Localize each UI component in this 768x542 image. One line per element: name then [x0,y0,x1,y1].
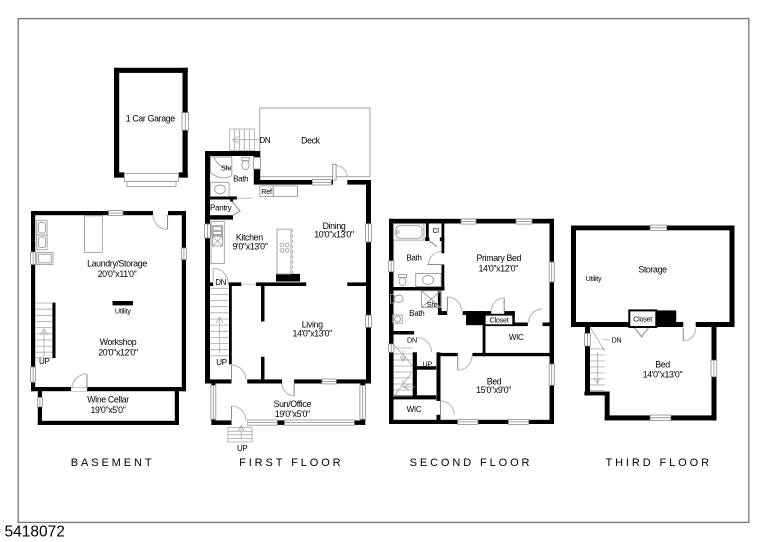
svg-text:Utility: Utility [586,274,602,283]
svg-text:Bath: Bath [233,174,248,183]
svg-text:Shr: Shr [221,164,232,173]
svg-text:BASEMENT: BASEMENT [71,457,155,469]
svg-text:10'0"x13'0": 10'0"x13'0" [314,230,354,240]
svg-text:WIC: WIC [509,333,524,342]
svg-text:15'0"x9'0": 15'0"x9'0" [476,385,511,395]
svg-text:Workshop: Workshop [100,337,137,347]
svg-text:Pantry: Pantry [210,204,232,213]
svg-text:20'0"x11'0": 20'0"x11'0" [98,269,137,279]
svg-text:9'0"x13'0": 9'0"x13'0" [233,241,268,251]
svg-text:Ref: Ref [261,187,272,196]
svg-text:Primary Bed: Primary Bed [477,253,522,263]
svg-text:DN: DN [407,336,417,345]
svg-text:Wine Cellar: Wine Cellar [87,395,129,405]
svg-text:Shr: Shr [427,300,438,309]
svg-text:14'0"x13'0": 14'0"x13'0" [292,328,332,338]
svg-text:Bed: Bed [655,360,670,370]
svg-text:Cl: Cl [432,226,439,235]
svg-text:Bath: Bath [406,253,421,262]
svg-text:Laundry/Storage: Laundry/Storage [87,259,147,269]
svg-text:19'0"x5'0": 19'0"x5'0" [91,405,126,415]
svg-text:Closet: Closet [490,316,509,325]
svg-text:WIC: WIC [407,405,422,414]
svg-text:SECOND FLOOR: SECOND FLOOR [410,457,533,469]
svg-text:Closet: Closet [633,315,652,324]
svg-text:Utility: Utility [115,307,131,316]
svg-text:14'0"x13'0": 14'0"x13'0" [643,370,683,380]
svg-text:5418072: 5418072 [5,524,65,541]
svg-text:1 Car Garage: 1 Car Garage [126,114,176,124]
svg-text:THIRD FLOOR: THIRD FLOOR [605,457,711,469]
svg-text:14'0"x12'0": 14'0"x12'0" [478,264,518,274]
svg-text:20'0"x12'0": 20'0"x12'0" [98,348,138,358]
svg-text:UP: UP [423,360,433,369]
svg-text:Bath: Bath [409,309,424,318]
svg-text:DN: DN [259,136,270,145]
svg-text:FIRST FLOOR: FIRST FLOOR [239,457,343,469]
svg-text:DN: DN [611,335,621,344]
svg-text:Sun/Office: Sun/Office [274,399,312,409]
svg-text:UP: UP [216,358,227,367]
svg-text:Deck: Deck [301,135,321,145]
svg-text:19'0"x5'0": 19'0"x5'0" [275,409,310,419]
svg-text:Storage: Storage [638,265,667,275]
svg-text:UP: UP [39,357,50,366]
svg-text:DN: DN [215,278,226,287]
svg-text:UP: UP [237,444,248,453]
